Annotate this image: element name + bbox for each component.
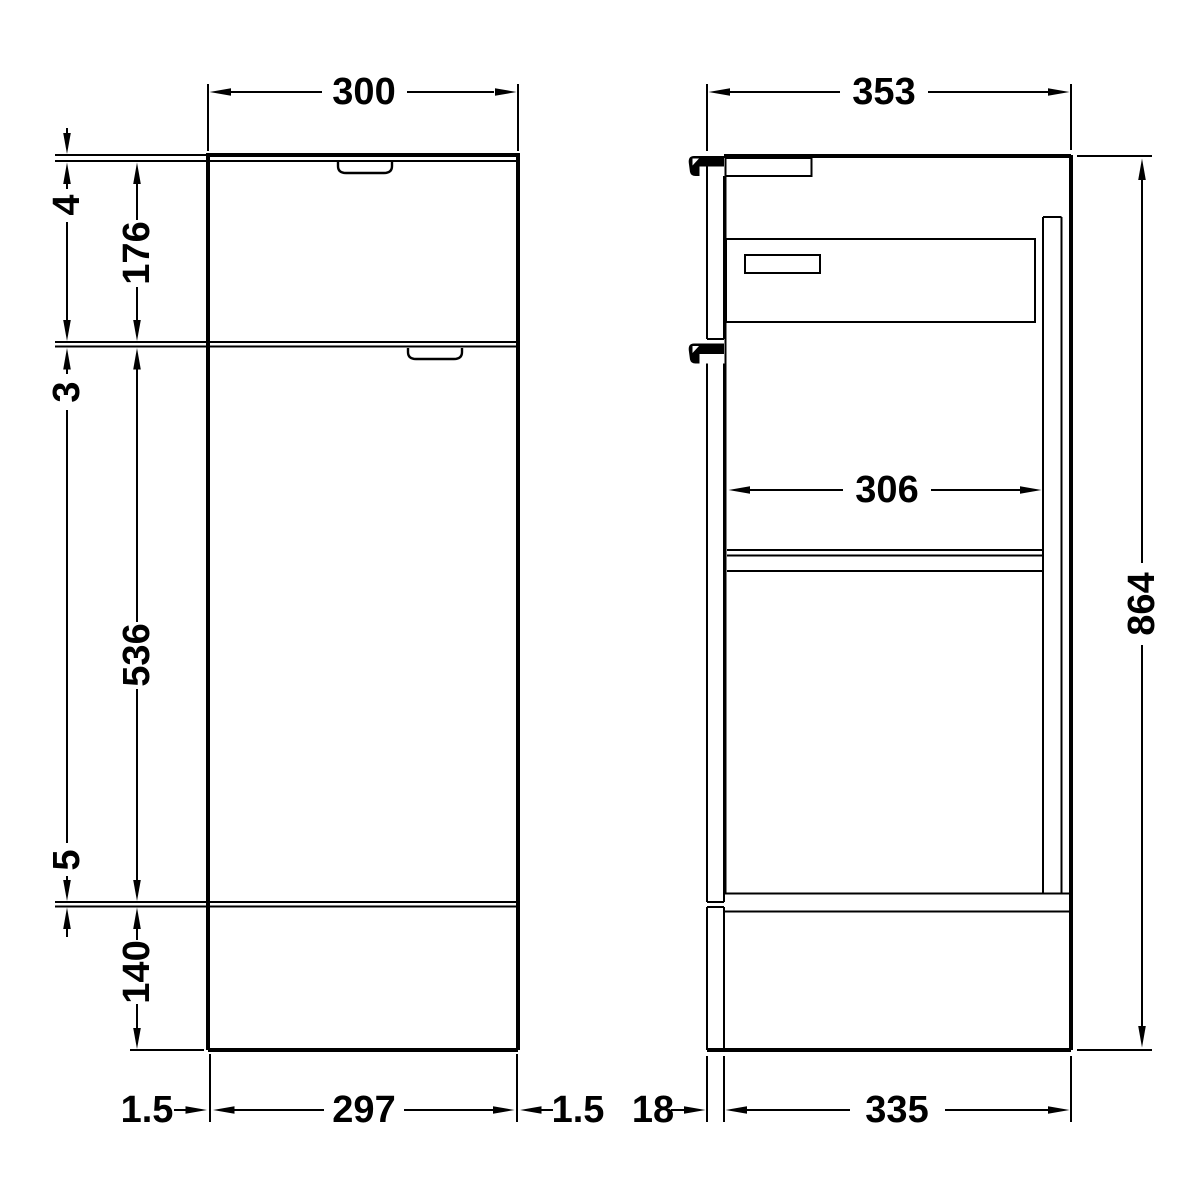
drawer-box-rail (745, 255, 820, 273)
dim-base-left-gap-label: 1.5 (121, 1089, 174, 1131)
internal-depth-arrow-right (1020, 486, 1042, 494)
dim-overall-width-label: 300 (332, 71, 395, 113)
width-arrow-right (495, 88, 517, 96)
carcass-depth-arrow-left (726, 1106, 748, 1114)
dim4-arrow-down (63, 133, 71, 154)
height-arrow-up (1138, 159, 1146, 181)
base-width-arrow-right (493, 1106, 515, 1114)
technical-drawing-page: 300 4 3 5 176 536 140 (0, 0, 1200, 1200)
dim176-arrow-up (133, 163, 141, 185)
dim4-arrow-up (63, 163, 71, 185)
dim5-arrow-down (63, 880, 71, 901)
dim-door-height-label: 536 (116, 623, 158, 686)
door-handle-notch (408, 348, 462, 359)
dim-front-thickness-label: 18 (632, 1089, 674, 1131)
dim-internal-depth-label: 306 (855, 469, 918, 511)
dim536-arrow-up (133, 348, 141, 370)
depth-arrow-right (1048, 88, 1070, 96)
dim-drawer-height-label: 176 (116, 221, 158, 284)
base-right-arrow (520, 1106, 542, 1114)
dim-door-plinth-gap-label: 5 (46, 849, 88, 870)
side-view-dimensions: 353 306 864 18 335 (632, 71, 1163, 1131)
base-width-arrow-left (213, 1106, 235, 1114)
dim176-arrow-down (133, 320, 141, 341)
dim3-arrow-up (63, 348, 71, 370)
drawer-handle-notch (338, 162, 392, 173)
dim-worktop-thickness-label: 4 (46, 194, 88, 215)
drawer-box (726, 239, 1035, 322)
dim-depth-label: 353 (852, 71, 915, 113)
internal-depth-arrow-left (729, 486, 751, 494)
dim5-arrow-up (63, 908, 71, 930)
side-elevation (689, 155, 1071, 1050)
dim-base-right-gap-label: 1.5 (552, 1089, 605, 1131)
front-thickness-arrow (684, 1106, 706, 1114)
top-front-rail (726, 158, 812, 176)
dim-carcass-depth-label: 335 (865, 1089, 928, 1131)
dim-drawer-door-gap-label: 3 (46, 381, 88, 402)
carcass-depth-arrow-right (1048, 1106, 1070, 1114)
base-left-arrow (186, 1106, 208, 1114)
dim140-arrow-down (133, 1028, 141, 1049)
dim140-arrow-up (133, 908, 141, 930)
width-arrow-left (210, 88, 232, 96)
cabinet-technical-drawing: 300 4 3 5 176 536 140 (0, 0, 1200, 1200)
front-elevation (55, 155, 520, 1050)
dim3-arrow-down (63, 320, 71, 341)
dim-overall-height-label: 864 (1121, 572, 1163, 635)
depth-arrow-left (709, 88, 731, 96)
front-view-dimensions: 300 4 3 5 176 536 140 (46, 71, 604, 1131)
height-arrow-down (1138, 1026, 1146, 1048)
dim-base-width-label: 297 (332, 1089, 395, 1131)
dim-plinth-height-label: 140 (116, 940, 158, 1003)
dim536-arrow-down (133, 880, 141, 901)
